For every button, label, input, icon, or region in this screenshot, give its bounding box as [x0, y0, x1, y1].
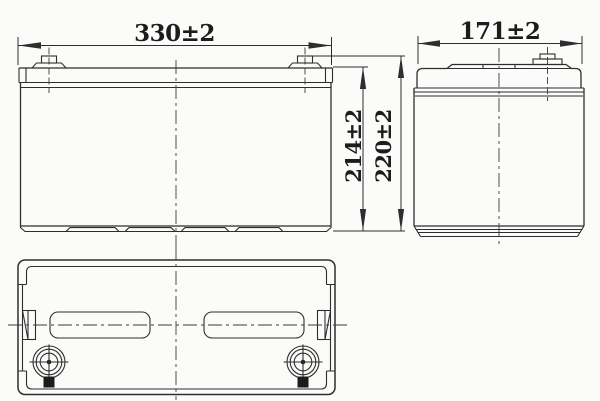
arrowhead-up [360, 67, 366, 89]
arrowhead-down [360, 209, 366, 231]
front-body [21, 60, 332, 247]
front-terminal-positive [288, 48, 322, 94]
top-view-inner-outline [18, 267, 335, 390]
arrowhead-left [18, 42, 41, 48]
arrowhead-up [398, 56, 404, 78]
battery-technical-drawing: 330±2 [0, 0, 600, 401]
top-terminal-right [284, 345, 323, 388]
front-view: 330±2 [18, 20, 333, 247]
front-terminal-negative [32, 48, 66, 94]
side-view: 171±2 [414, 18, 584, 247]
dim-side-width: 171±2 [418, 18, 582, 64]
dim-case-height: 214±2 [333, 67, 368, 231]
terminal-mark-left [44, 377, 55, 388]
drawing-canvas: 330±2 [0, 0, 600, 401]
dim-front-width: 330±2 [18, 20, 332, 65]
top-view-outline [18, 260, 335, 395]
arrowhead-left [418, 40, 440, 46]
arrowhead-right [560, 40, 582, 46]
side-terminal [533, 47, 562, 101]
arrowhead-down [398, 209, 404, 231]
case-height-label: 214±2 [341, 109, 366, 183]
side-body [414, 48, 584, 247]
total-height-label: 220±2 [371, 109, 396, 183]
top-view [8, 246, 347, 400]
terminal-mark-right [298, 377, 309, 388]
side-width-label: 171±2 [460, 18, 541, 45]
top-terminal-left [30, 345, 69, 388]
arrowhead-right [309, 42, 332, 48]
front-width-label: 330±2 [134, 20, 215, 47]
